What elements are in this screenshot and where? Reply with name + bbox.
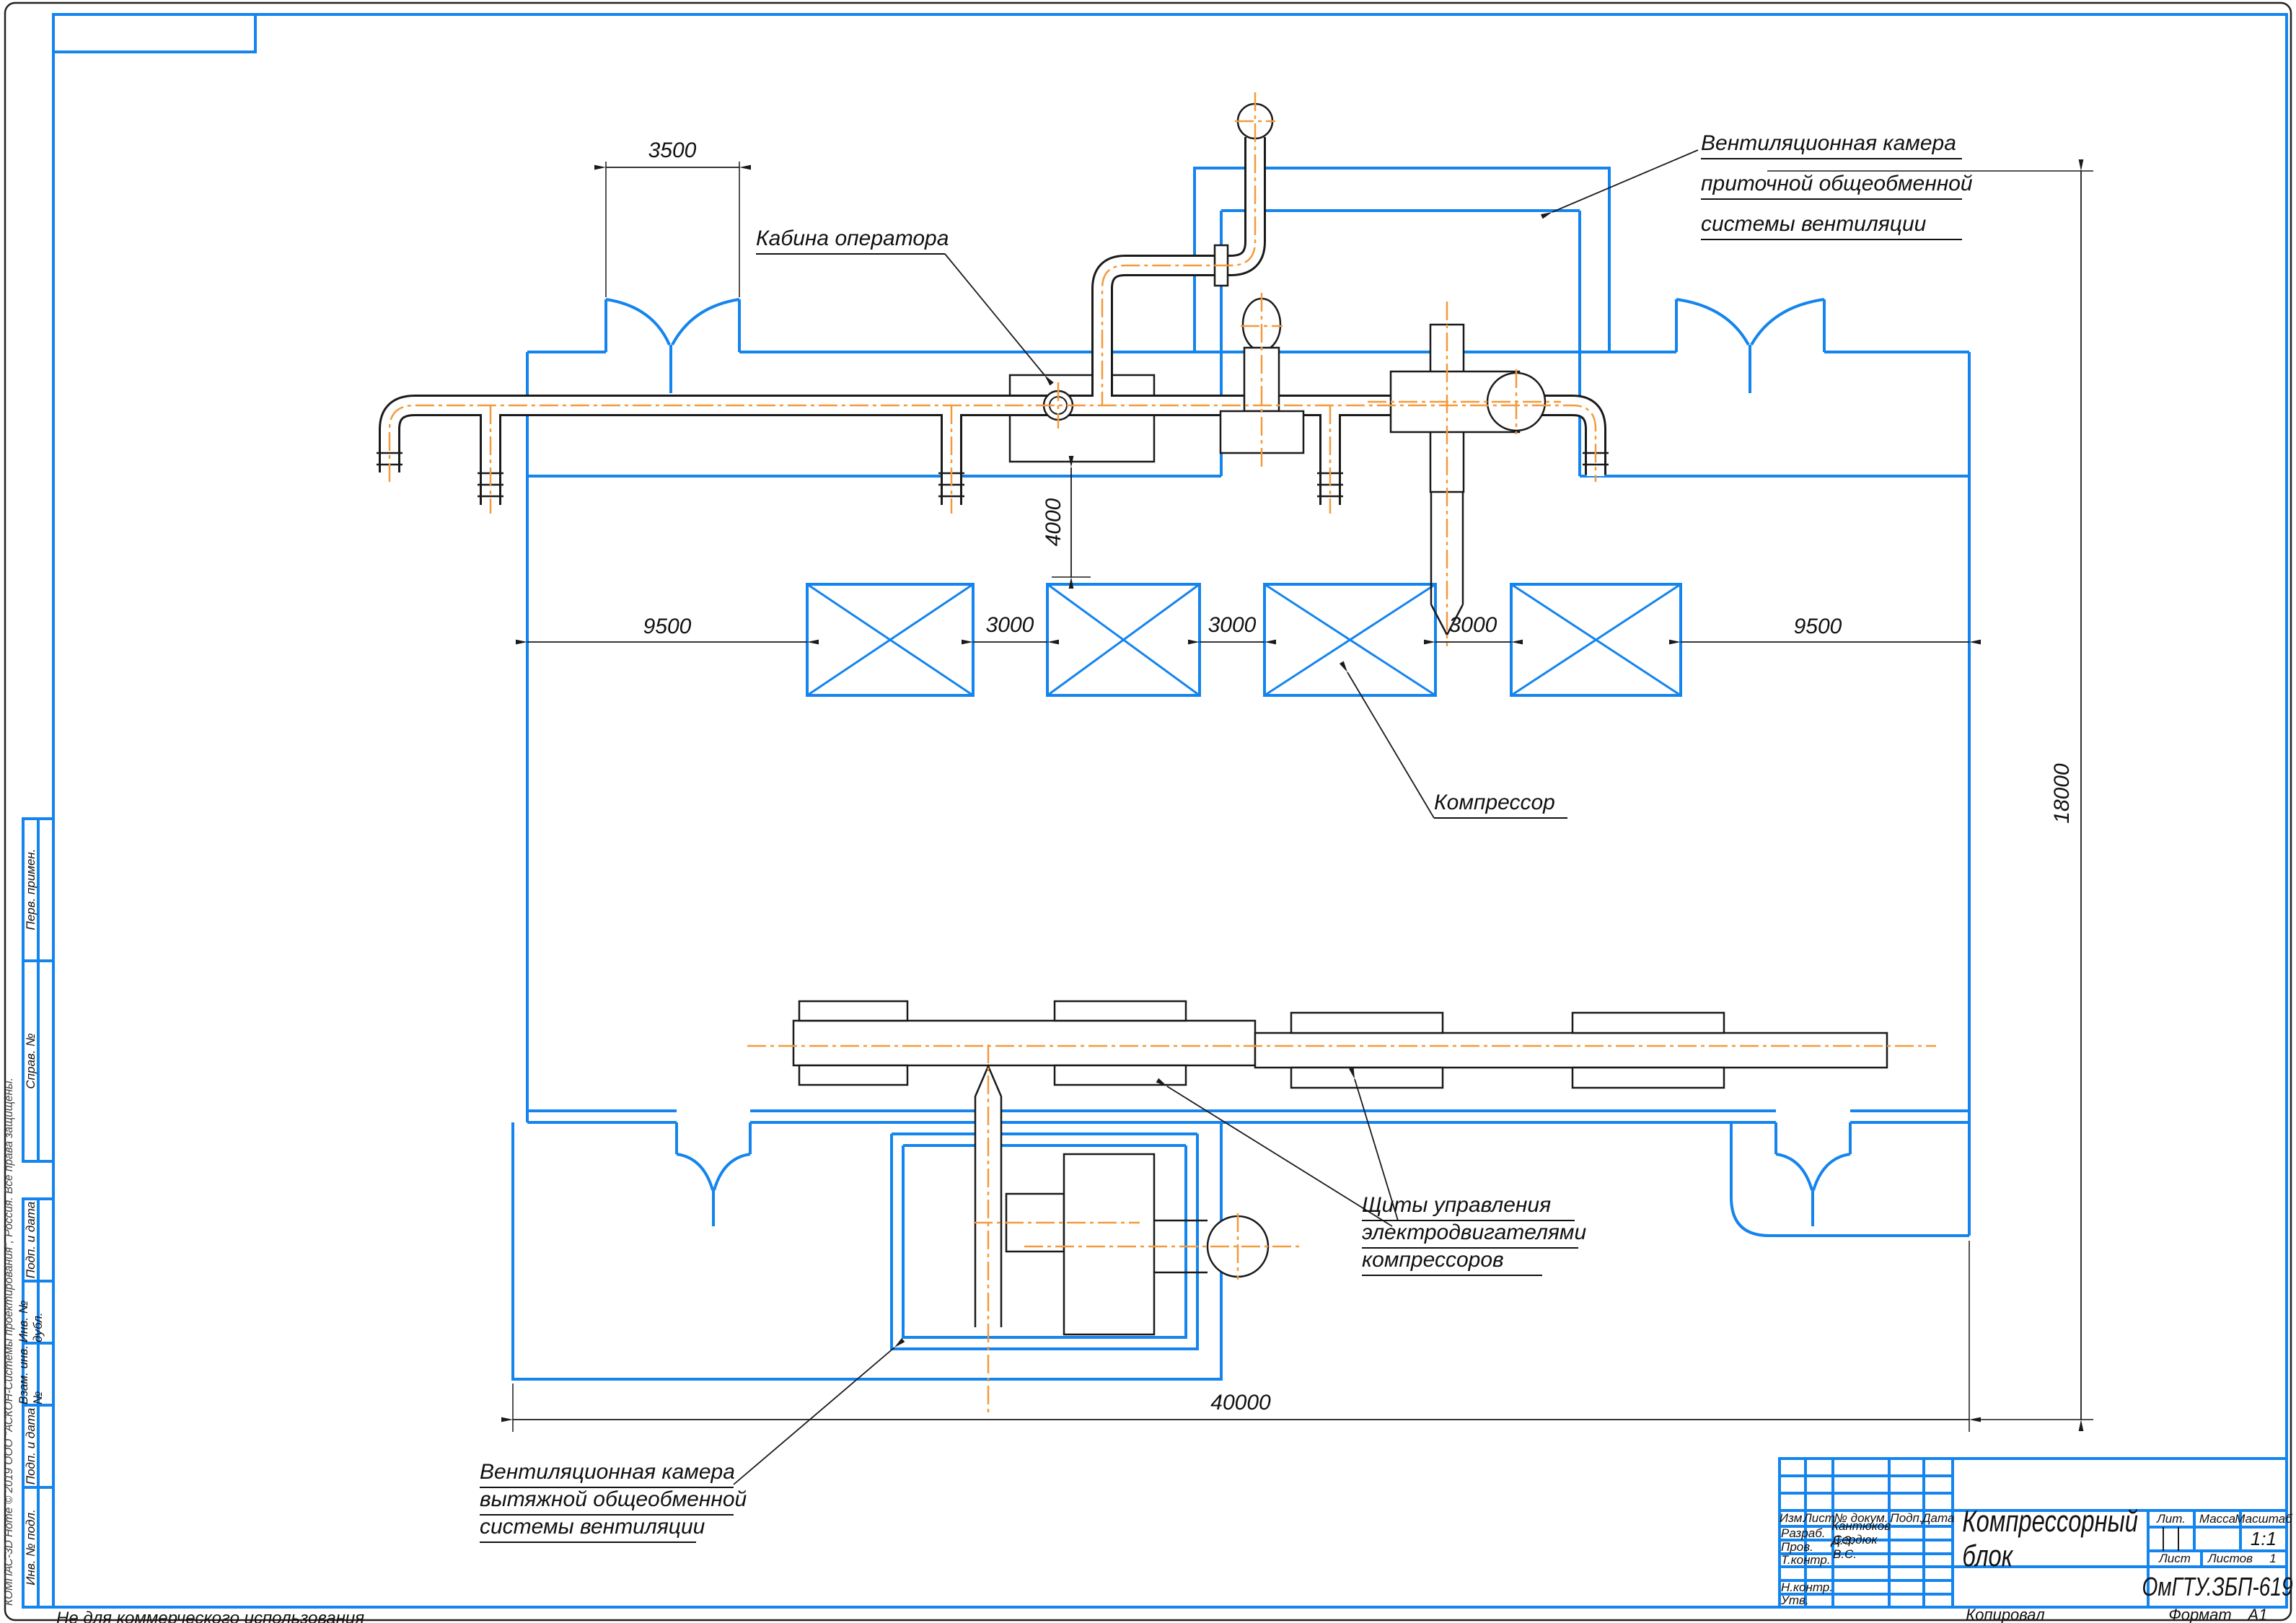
dim-9500-right: 9500 [1771,615,1865,639]
tb-sheet-label: Лист [2148,1551,2202,1567]
compressor-3 [1264,584,1435,695]
label-supply-vent-2: приточной общеобменной [1701,172,1962,200]
tb-row2-label: Т.контр. [1781,1554,1833,1567]
format-label: Формат [2164,1607,2236,1623]
dim-3500: 3500 [628,138,717,163]
stamp-podp-data-2: Подп. и дата [24,1407,38,1486]
pipe-centerlines [390,92,1936,1412]
control-panel [1291,1013,1443,1033]
label-panels-3: компрессоров [1362,1248,1542,1276]
doc-code-text: ОмГТУ.ЗБП-619 [2142,1572,2292,1602]
label-supply-vent-1: Вентиляционная камера [1701,131,1962,159]
control-panel [1055,1065,1186,1085]
dim-18000: 18000 [2050,743,2076,844]
control-panel [799,1065,907,1085]
label-exhaust-vent-2: вытяжной общеобменной [480,1487,734,1516]
format-value: А1 [2236,1607,2279,1623]
label-supply-vent-3: системы вентиляции [1701,212,1962,240]
stamp-perv-primen: Перв. примен. [24,821,38,958]
sheet-border [5,3,2291,1620]
tb-sheets-label: Листов [2202,1551,2259,1567]
dim-9500-left: 9500 [620,615,714,639]
control-panel [799,1001,907,1021]
tb-mass-label: Масса [2194,1510,2240,1527]
label-exhaust-vent-3: системы вентиляции [480,1515,696,1543]
compressor-4 [1511,584,1681,695]
fan-unit-b [1391,325,1545,635]
tb-row5-label: Утв. [1781,1594,1833,1607]
label-panels-1: Щиты управления [1362,1193,1575,1221]
tb-lit-label: Лит. [2148,1510,2194,1527]
copied-label: Копировал [1948,1607,2063,1623]
tb-scale-label: Масштаб [2240,1510,2287,1527]
label-exhaust-vent-1: Вентиляционная камера [480,1460,734,1488]
stamp-podp-data-1: Подп. и дата [24,1200,38,1280]
label-compressor: Компрессор [1434,791,1567,819]
not-for-commercial-note: Не для коммерческого использования [56,1609,364,1623]
tb-col-data: Дата [1924,1510,1953,1526]
tb-doc-title: Компрессорный блок [1953,1510,2148,1567]
tb-row3-label [1781,1567,1833,1580]
control-panel [1291,1068,1443,1088]
tb-row1-label: Пров. [1781,1540,1833,1554]
stamp-sprav-no: Справ. № [24,993,38,1130]
dim-3000-b: 3000 [1189,613,1275,638]
drawing-sheet: Кабина оператора Вентиляционная камера п… [0,0,2296,1623]
title-block-lit-subcells [2163,1527,2178,1551]
tb-doc-code: ОмГТУ.ЗБП-619 [2148,1567,2287,1607]
tb-row4-label: Н.контр. [1781,1580,1833,1594]
piping-black [377,104,1609,506]
operator-cabin [1010,375,1154,462]
tb-row1-value: Сердюк В.С. [1833,1540,1889,1554]
bottom-duct-assembly [793,1001,1887,1327]
dim-40000: 40000 [1183,1391,1298,1415]
dim-4000: 4000 [1042,479,1068,566]
tb-col-podp: Подп. [1889,1510,1924,1526]
tb-sheets-value: 1 [2259,1551,2287,1567]
tb-row0-label: Разраб. [1781,1526,1833,1540]
exhaust-fan-unit [1006,1154,1268,1334]
stamp-inv-podl: Инв. № подл. [24,1500,38,1594]
stamp-inv-dubl: Инв. № дубл. [24,1282,38,1342]
tb-scale-value: 1:1 [2240,1527,2287,1551]
tb-col-list: Лист [1805,1510,1833,1526]
tb-col-izm: Изм. [1780,1510,1805,1526]
frame-lines [23,14,2287,1607]
compressor-2 [1047,584,1200,695]
stamp-vzam-inv: Взам. инв. № [24,1344,38,1404]
control-panel [1055,1001,1186,1021]
kompas-watermark: КОМПАС-3D Home © 2019 ООО "АСКОН-Системы… [3,1130,16,1606]
compressors [807,584,1681,695]
control-panel [1573,1068,1724,1088]
compressor-1 [807,584,973,695]
dim-3000-c: 3000 [1430,613,1516,638]
label-panels-2: электродвигателями [1362,1220,1578,1249]
dim-3000-a: 3000 [967,613,1053,638]
control-panel [1573,1013,1724,1033]
doc-title-text: Компрессорный блок [1963,1504,2139,1573]
label-operator-cabin: Кабина оператора [756,226,945,255]
drawing-canvas [0,0,2296,1623]
